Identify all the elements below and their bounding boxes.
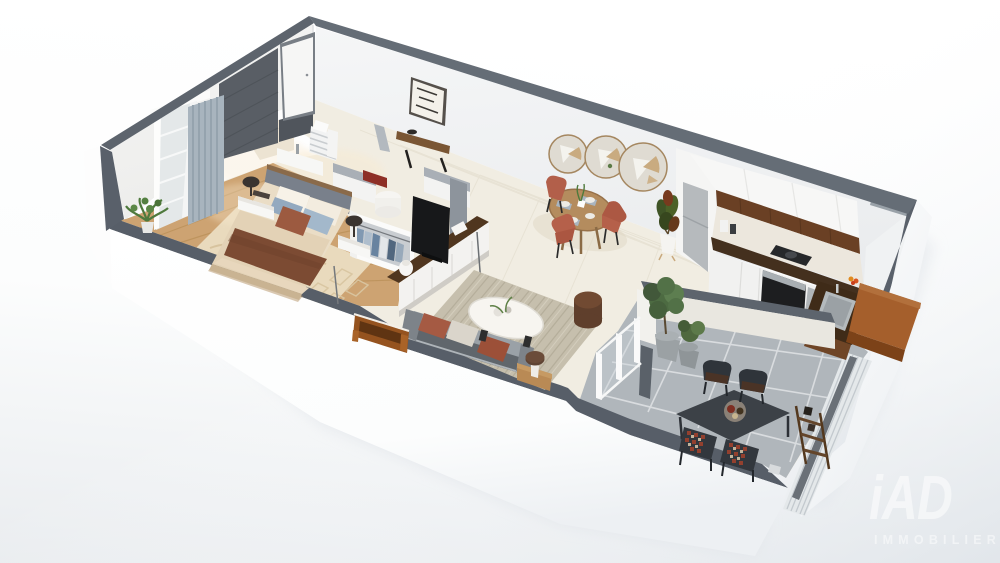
svg-text:IMMOBILIER: IMMOBILIER — [874, 533, 1000, 547]
svg-text:iAD: iAD — [869, 463, 952, 533]
